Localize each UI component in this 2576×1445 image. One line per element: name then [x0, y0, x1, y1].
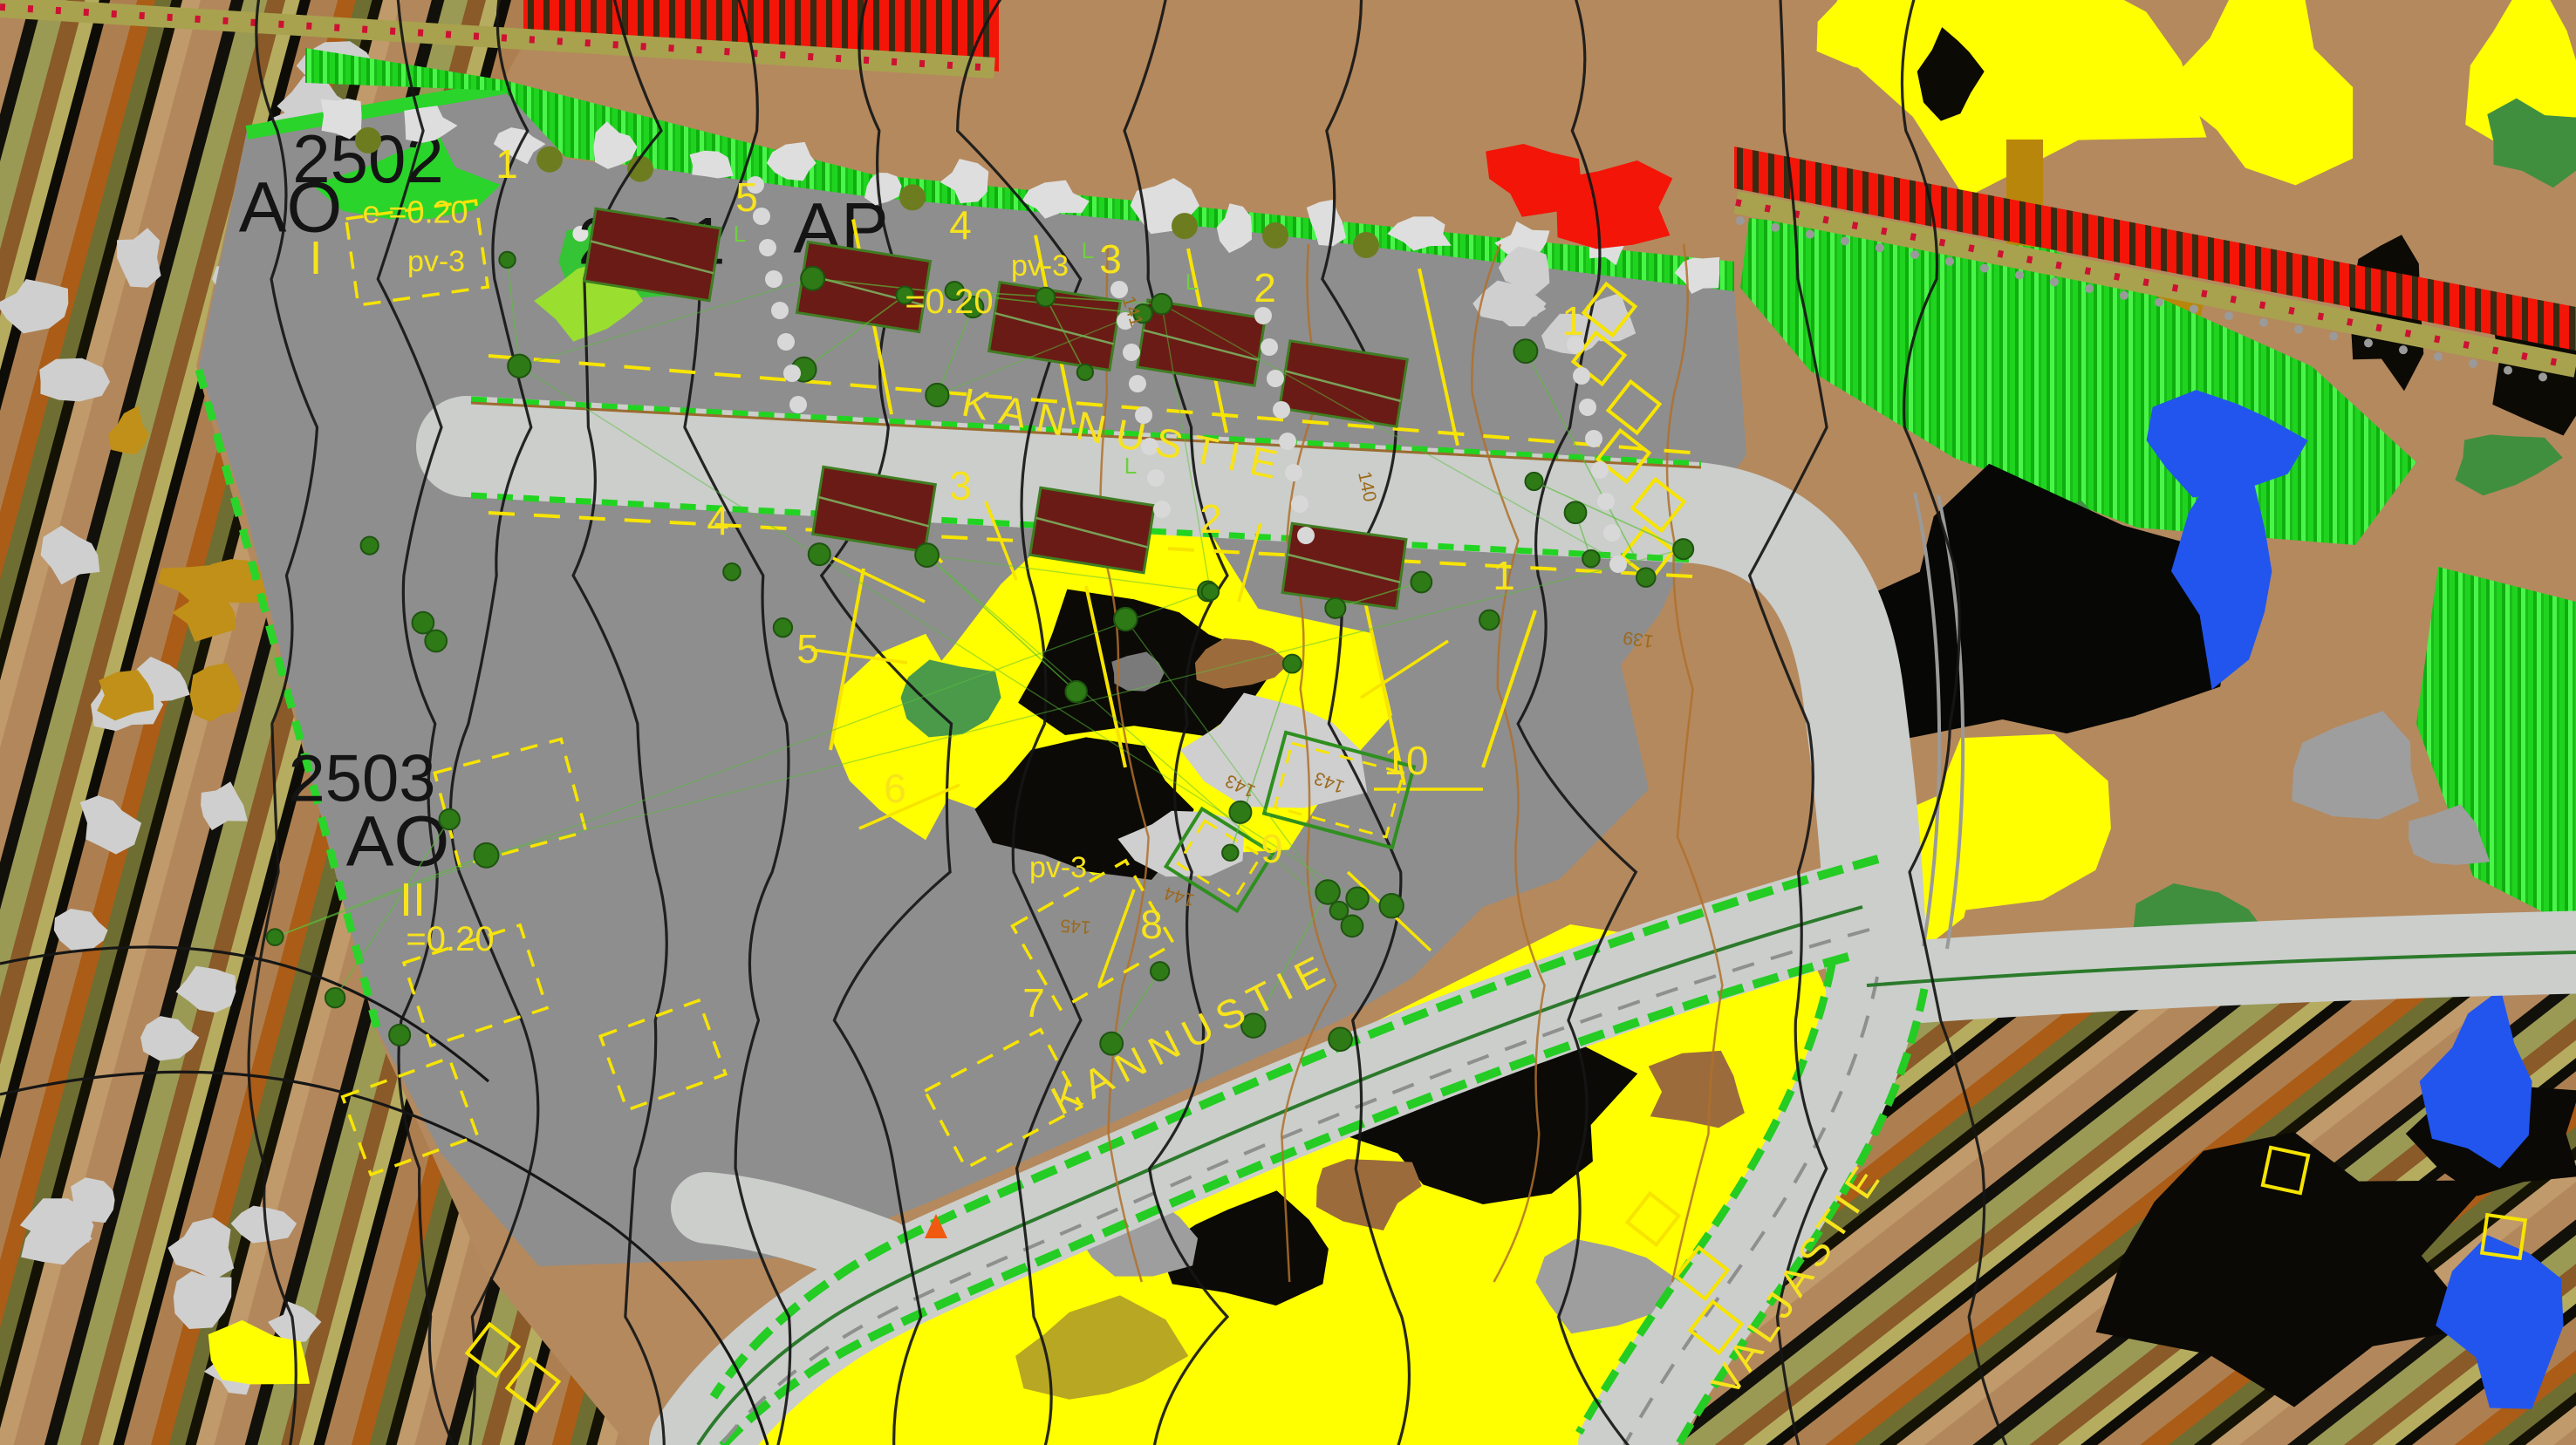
plot-number: 3	[949, 463, 972, 508]
tree-dot	[1151, 962, 1169, 980]
tree-dot	[1346, 887, 1369, 910]
railway-dot	[2329, 332, 2338, 341]
tree-canopy-olive	[899, 184, 926, 210]
contour-elevation: 139	[1622, 627, 1655, 651]
plot-number: 1	[1561, 298, 1584, 344]
efficiency-2501: =0.20	[905, 283, 993, 321]
plot-number: 4	[949, 202, 972, 248]
map-canvas: Detailed zoning plan map — Kannustie / V…	[0, 0, 2576, 1445]
plot-number: 8	[1140, 902, 1163, 947]
tree-dot-white	[1291, 495, 1308, 513]
tree-dot-white	[1579, 399, 1596, 416]
tree-dot	[915, 543, 939, 567]
tree-dot-white	[1297, 527, 1315, 544]
road-culdesac-arm	[707, 1208, 881, 1254]
tree-dot	[1329, 1027, 1352, 1051]
railway-dot	[2399, 345, 2408, 354]
tree-dot-white	[1273, 401, 1290, 419]
zone-code-ao-2503: AO	[346, 802, 449, 882]
tree-canopy-olive	[1353, 232, 1379, 258]
railway-dot	[2224, 311, 2233, 320]
plot-number: 7	[1022, 980, 1045, 1026]
tree-dot-white	[1609, 556, 1627, 573]
railway-dot	[1910, 250, 1919, 259]
railway-dot	[2015, 270, 2024, 279]
tree-dot	[425, 630, 447, 652]
tree-dot-white	[1573, 367, 1590, 385]
map-symbol-l: L	[1186, 269, 1198, 295]
railway-dot	[2364, 338, 2373, 347]
tree-dot	[1151, 294, 1172, 314]
tree-dot	[413, 612, 434, 634]
tree-dot	[1065, 681, 1086, 702]
tree-dot	[1036, 288, 1056, 307]
tree-dot-white	[1153, 501, 1171, 518]
tree-canopy-olive	[536, 147, 563, 173]
tree-dot	[1325, 598, 1345, 618]
tree-dot	[1673, 539, 1693, 559]
railway-dot	[1771, 223, 1780, 232]
zone-code-ao-2502: AO	[239, 168, 342, 248]
tree-dot-white	[1603, 524, 1621, 542]
railway-dot	[2504, 366, 2512, 375]
map-symbol-l: L	[734, 221, 746, 247]
tree-dot	[1202, 583, 1220, 601]
tree-dot	[1636, 568, 1656, 587]
plot-number: 5	[796, 626, 819, 671]
tree-dot	[440, 809, 460, 829]
plot-number: 9	[1261, 826, 1283, 871]
tree-dot	[1222, 845, 1238, 861]
plot-number: 1	[1493, 553, 1515, 598]
railway-dot	[1841, 236, 1849, 245]
tree-dot	[1565, 501, 1587, 523]
groundwater-2501: pv-3	[1011, 249, 1069, 283]
tree-canopy-olive	[1172, 213, 1198, 239]
tree-dot	[1513, 339, 1537, 363]
tree-dot	[809, 543, 830, 565]
plot-number: 2	[1199, 496, 1222, 542]
tree-dot	[325, 988, 345, 1007]
tree-dot-white	[1267, 370, 1284, 387]
groundwater-2503: pv-3	[1029, 851, 1087, 884]
tree-dot-white	[1261, 338, 1278, 356]
tree-dot	[1283, 655, 1302, 673]
tree-dot-white	[759, 239, 776, 256]
contour-elevation: 145	[1060, 915, 1092, 937]
efficiency-2503: =0.20	[406, 920, 494, 958]
groundwater-2502: pv-3	[407, 245, 465, 278]
tree-dot-white	[1591, 461, 1609, 479]
plot-number: 4	[707, 498, 729, 543]
railway-dot	[2259, 318, 2268, 327]
tree-dot	[475, 843, 499, 868]
tree-dot	[508, 355, 530, 378]
tree-dot	[926, 384, 948, 406]
tree-dot	[361, 537, 379, 555]
railway-dot	[1876, 243, 1884, 252]
railway-dot	[2434, 352, 2443, 361]
floors-2503: II	[400, 874, 426, 926]
tree-dot	[267, 929, 284, 945]
plot-number: 2	[1254, 265, 1276, 310]
map-symbol-l: L	[1124, 453, 1137, 479]
railway-dot	[2085, 284, 2094, 293]
efficiency-2502: e =0.20	[362, 194, 468, 230]
tree-dot-white	[783, 365, 801, 382]
plot-number: 10	[1384, 738, 1428, 783]
road-east	[1867, 952, 2576, 985]
plot-number: 1	[495, 141, 518, 187]
railway-dot	[1980, 264, 1989, 273]
railway-dot	[2538, 372, 2547, 381]
tree-dot	[1479, 610, 1500, 630]
floors-2502: I	[309, 232, 322, 284]
plot-number: 5	[735, 174, 758, 220]
tree-dot-white	[1110, 281, 1128, 298]
tree-dot	[801, 267, 824, 290]
tree-dot	[723, 563, 741, 581]
tree-dot	[1411, 572, 1431, 593]
tree-dot	[774, 618, 792, 637]
tree-dot	[1077, 365, 1093, 380]
railway-dot	[2294, 325, 2303, 334]
tree-dot-white	[1129, 375, 1146, 392]
tree-dot-white	[789, 396, 807, 413]
tree-dot	[499, 252, 515, 268]
tree-dot-white	[765, 270, 782, 288]
plot-number: 3	[1099, 236, 1122, 282]
railway-dot	[1736, 216, 1745, 225]
tree-canopy-olive	[355, 127, 381, 153]
railway-dot	[2050, 277, 2059, 286]
railway-dot	[1806, 230, 1814, 239]
tree-dot	[1582, 550, 1600, 568]
tree-dot	[389, 1025, 410, 1046]
tree-dot	[1330, 902, 1349, 920]
railway-dot	[2155, 298, 2163, 307]
tree-dot-white	[1597, 493, 1615, 510]
tree-dot	[1229, 801, 1251, 823]
tree-dot	[1525, 473, 1542, 490]
railway-dot	[2469, 359, 2477, 368]
railway-dot	[2190, 304, 2198, 313]
tree-dot-white	[1585, 430, 1602, 447]
tree-dot-white	[777, 333, 795, 351]
railway-dot	[2120, 291, 2128, 300]
tree-dot	[1315, 880, 1339, 903]
tree-dot	[1380, 894, 1404, 917]
zoning-plan-map: Detailed zoning plan map — Kannustie / V…	[0, 0, 2576, 1445]
tree-canopy-olive	[1262, 222, 1288, 249]
tree-dot	[1114, 608, 1137, 630]
tree-dot-white	[771, 302, 789, 319]
railway-dot	[1945, 257, 1954, 266]
tree-dot-white	[1123, 344, 1140, 361]
plot-number: 6	[884, 766, 906, 811]
map-symbol-l: L	[1082, 237, 1094, 263]
tree-dot-white	[1147, 469, 1165, 487]
